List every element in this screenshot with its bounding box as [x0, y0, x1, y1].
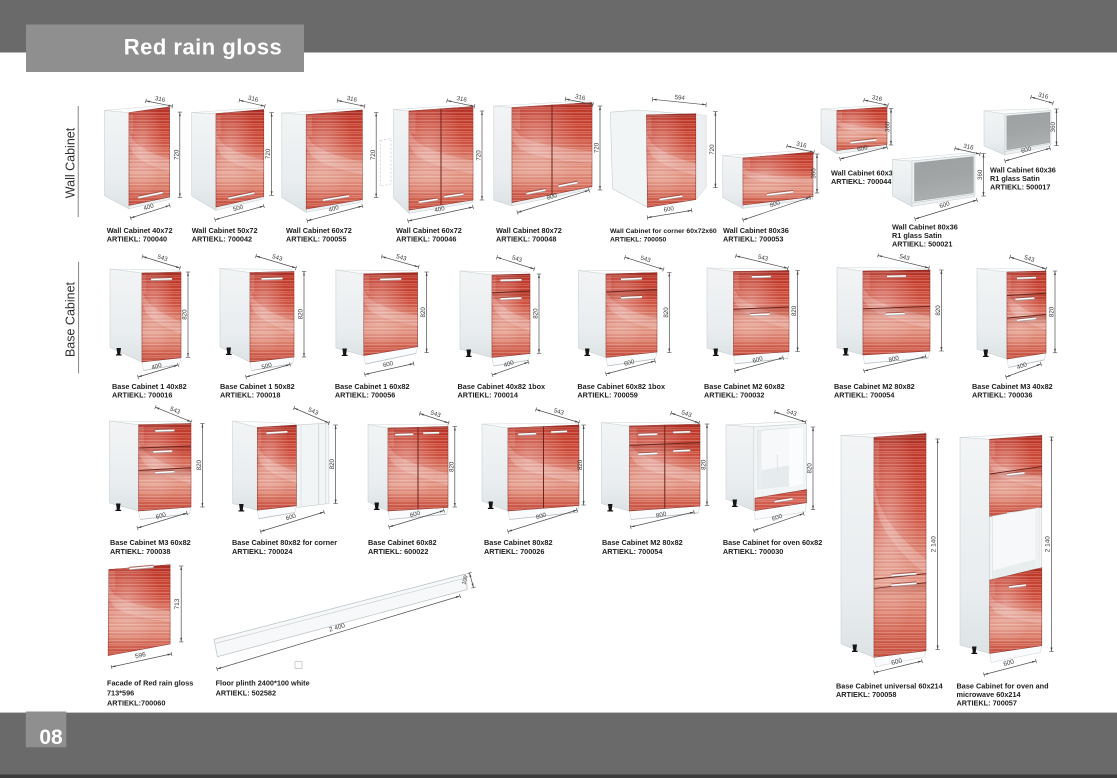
svg-text:Red rain gloss: Red rain gloss	[124, 35, 283, 60]
svg-text:ARTIEKL: 500017: ARTIEKL: 500017	[990, 183, 1050, 192]
svg-text:Base Cabinet for oven 60x82: Base Cabinet for oven 60x82	[723, 538, 822, 547]
svg-text:360: 360	[977, 169, 984, 180]
svg-text:ARTIEKL: 502582: ARTIEKL: 502582	[216, 689, 276, 698]
svg-text:713*596: 713*596	[107, 689, 134, 698]
svg-text:ARTIEKL: 700050: ARTIEKL: 700050	[610, 237, 667, 244]
svg-text:360: 360	[885, 121, 892, 132]
svg-text:ARTIEKL: 700032: ARTIEKL: 700032	[704, 391, 764, 400]
svg-text:ARTIEKL:700060: ARTIEKL:700060	[107, 699, 165, 708]
svg-text:820: 820	[935, 305, 942, 316]
svg-text:713: 713	[174, 598, 181, 609]
svg-text:720: 720	[594, 142, 601, 153]
svg-text:Base Cabinet 60x82: Base Cabinet 60x82	[368, 538, 437, 547]
svg-text:360: 360	[811, 168, 818, 179]
svg-text:720: 720	[173, 149, 180, 160]
svg-text:Base Cabinet 80x82: Base Cabinet 80x82	[484, 538, 553, 547]
svg-text:820: 820	[298, 308, 305, 319]
svg-text:820: 820	[577, 459, 584, 470]
svg-text:Base Cabinet M3 60x82: Base Cabinet M3 60x82	[110, 538, 191, 547]
svg-text:Base Cabinet M2 80x82: Base Cabinet M2 80x82	[602, 538, 683, 547]
svg-text:ARTIEKL: 700054: ARTIEKL: 700054	[834, 391, 895, 400]
svg-text:ARTIEKL: 700048: ARTIEKL: 700048	[496, 235, 556, 244]
svg-text:360: 360	[1050, 121, 1057, 132]
svg-text:ARTIEKL: 700036: ARTIEKL: 700036	[972, 391, 1032, 400]
svg-text:ARTIEKL: 700044: ARTIEKL: 700044	[831, 177, 892, 186]
svg-text:720: 720	[265, 148, 272, 159]
svg-text:ARTIEKL: 700053: ARTIEKL: 700053	[723, 235, 783, 244]
svg-text:ARTIEKL: 700014: ARTIEKL: 700014	[458, 391, 519, 400]
svg-text:820: 820	[196, 459, 203, 470]
svg-text:820: 820	[182, 309, 189, 320]
svg-text:ARTIEKL: 700026: ARTIEKL: 700026	[484, 547, 544, 556]
svg-text:ARTIEKL: 700018: ARTIEKL: 700018	[220, 391, 280, 400]
svg-text:ARTIEKL: 700038: ARTIEKL: 700038	[110, 547, 170, 556]
svg-text:2 140: 2 140	[1044, 536, 1051, 553]
svg-text:2 140: 2 140	[930, 536, 937, 553]
svg-text:820: 820	[701, 459, 708, 470]
svg-text:ARTIEKL: 700059: ARTIEKL: 700059	[577, 391, 637, 400]
svg-text:820: 820	[791, 305, 798, 316]
svg-text:ARTIEKL: 700057: ARTIEKL: 700057	[957, 699, 1017, 708]
svg-text:Base Cabinet 80x82 for corner: Base Cabinet 80x82 for corner	[232, 538, 337, 547]
svg-text:594: 594	[674, 94, 686, 102]
svg-text:720: 720	[709, 144, 716, 155]
svg-text:08: 08	[39, 726, 63, 749]
svg-text:ARTIEKL: 700042: ARTIEKL: 700042	[192, 235, 252, 244]
svg-text:Wall Cabinet for corner 60x72x: Wall Cabinet for corner 60x72x60	[610, 228, 717, 235]
svg-text:820: 820	[448, 461, 455, 472]
svg-text:ARTIEKL: 700056: ARTIEKL: 700056	[335, 391, 395, 400]
svg-text:Base Cabinet: Base Cabinet	[64, 281, 78, 357]
svg-text:820: 820	[807, 463, 814, 474]
svg-text:ARTIEKL: 700040: ARTIEKL: 700040	[107, 235, 167, 244]
svg-text:Wall Cabinet: Wall Cabinet	[64, 127, 78, 198]
svg-text:720: 720	[370, 149, 377, 160]
svg-text:Floor plinth 2400*100 white: Floor plinth 2400*100 white	[216, 679, 310, 688]
svg-text:Facade of Red rain gloss: Facade of Red rain gloss	[107, 679, 193, 688]
svg-text:ARTIEKL: 600022: ARTIEKL: 600022	[368, 547, 428, 556]
svg-text:820: 820	[663, 307, 670, 318]
svg-text:ARTIEKL: 700055: ARTIEKL: 700055	[286, 235, 346, 244]
svg-text:ARTIEKL: 700054: ARTIEKL: 700054	[602, 547, 663, 556]
svg-text:ARTIEKL: 700016: ARTIEKL: 700016	[112, 391, 172, 400]
svg-text:ARTIEKL: 700058: ARTIEKL: 700058	[836, 690, 896, 699]
svg-text:ARTIEKL: 700046: ARTIEKL: 700046	[396, 235, 456, 244]
svg-text:ARTIEKL: 500021: ARTIEKL: 500021	[892, 240, 952, 249]
svg-text:820: 820	[1049, 306, 1056, 317]
svg-text:ARTIEKL: 700030: ARTIEKL: 700030	[723, 547, 783, 556]
svg-text:820: 820	[329, 458, 336, 469]
svg-text:ARTIEKL: 700024: ARTIEKL: 700024	[232, 547, 293, 556]
svg-text:820: 820	[533, 308, 540, 319]
svg-text:820: 820	[420, 307, 427, 318]
svg-text:720: 720	[476, 150, 483, 161]
